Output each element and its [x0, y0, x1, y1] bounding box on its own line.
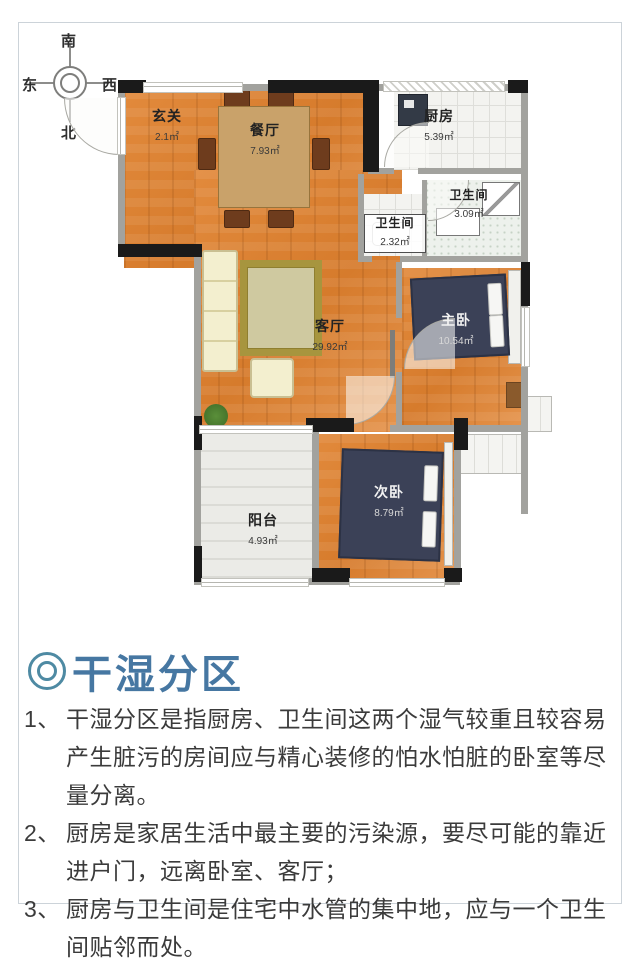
room-area: 2.1㎡ — [155, 132, 179, 143]
compass-label-east: 东 — [22, 74, 37, 95]
dining-chair — [312, 138, 330, 170]
double-circle-icon — [28, 652, 66, 690]
room-name: 次卧 — [344, 484, 434, 502]
room-name: 阳台 — [218, 512, 308, 530]
room-label-master: 主卧 10.54㎡ — [416, 312, 496, 350]
room-area: 4.93㎡ — [248, 536, 277, 547]
list-item: 2、 厨房是家居生活中最主要的污染源，要尽可能的靠近进户门，远离卧室、客厅； — [24, 814, 618, 890]
room-name: 餐厅 — [230, 122, 300, 140]
dining-chair — [224, 210, 250, 228]
room-area: 2.32㎡ — [380, 237, 409, 248]
tv — [390, 330, 395, 378]
room-label-bath-large: 卫生间 3.09㎡ — [434, 188, 504, 223]
plant — [204, 404, 228, 428]
room-name: 主卧 — [416, 312, 496, 330]
item-text: 厨房是家居生活中最主要的污染源，要尽可能的靠近进户门，远离卧室、客厅； — [66, 814, 618, 890]
double-circle-inner — [37, 661, 57, 681]
wall-black — [306, 418, 354, 432]
item-number: 1、 — [24, 700, 66, 814]
wall-segment — [396, 372, 402, 430]
list-item: 1、 干湿分区是指厨房、卫生间这两个湿气较重且较容易产生脏污的房间应与精心装修的… — [24, 700, 618, 814]
room-label-living: 客厅 29.92㎡ — [290, 318, 370, 356]
side-platform — [460, 434, 522, 474]
wall-black — [444, 568, 462, 582]
room-name: 玄关 — [132, 108, 202, 126]
tips-list: 1、 干湿分区是指厨房、卫生间这两个湿气较重且较容易产生脏污的房间应与精心装修的… — [24, 700, 618, 966]
room-area: 5.39㎡ — [424, 132, 453, 143]
window — [522, 308, 529, 366]
entry-door-opening — [118, 98, 125, 154]
pillow — [487, 283, 503, 316]
master-wardrobe — [508, 270, 521, 364]
room-name: 卫生间 — [368, 216, 422, 231]
room-label-bath-small: 卫生间 2.32㎡ — [364, 214, 426, 253]
wall-segment — [396, 262, 402, 318]
window — [350, 579, 444, 586]
window — [202, 579, 308, 586]
wall-black — [521, 262, 530, 306]
compass-label-west: 西 — [102, 74, 117, 95]
room-area: 7.93㎡ — [250, 146, 279, 157]
section-title-text: 干湿分区 — [72, 642, 244, 700]
wall-black — [363, 80, 379, 172]
room-label-dining: 餐厅 7.93㎡ — [230, 122, 300, 160]
wall-segment — [400, 256, 528, 262]
room-label-balcony: 阳台 4.93㎡ — [218, 512, 308, 550]
wall-segment — [312, 432, 319, 582]
armchair — [250, 358, 294, 398]
list-item: 3、 厨房与卫生间是住宅中水管的集中地，应与一个卫生间贴邻而处。 — [24, 890, 618, 966]
wall-black — [268, 80, 366, 93]
item-text: 干湿分区是指厨房、卫生间这两个湿气较重且较容易产生脏污的房间应与精心装修的怕水怕… — [66, 700, 618, 814]
wall-black — [312, 568, 350, 582]
room-name: 卫生间 — [434, 188, 504, 203]
room-area: 29.92㎡ — [312, 342, 347, 353]
compass-inner-circle — [60, 73, 80, 93]
wall-black — [194, 546, 202, 582]
room-label-second: 次卧 8.79㎡ — [344, 484, 434, 522]
appliance-panel — [404, 100, 414, 108]
window — [144, 83, 242, 92]
room-area: 8.79㎡ — [374, 508, 403, 519]
wall-black — [194, 416, 202, 450]
floor-plan: 玄关 2.1㎡ 餐厅 7.93㎡ 厨房 5.39㎡ 卫生间 2.32㎡ 卫生间 … — [118, 80, 530, 592]
wall-black — [454, 418, 468, 450]
wall-segment — [454, 428, 461, 578]
balcony-floor — [198, 434, 312, 578]
wall-black — [118, 244, 202, 257]
room-label-entrance: 玄关 2.1㎡ — [132, 108, 202, 146]
section-title: 干湿分区 — [28, 642, 244, 700]
wall-black — [118, 80, 146, 93]
room-area: 3.09㎡ — [454, 209, 483, 220]
item-number: 2、 — [24, 814, 66, 890]
room-label-kitchen: 厨房 5.39㎡ — [404, 108, 474, 146]
room-area: 10.54㎡ — [438, 336, 473, 347]
kitchen-window — [384, 82, 504, 91]
item-number: 3、 — [24, 890, 66, 966]
room-name: 厨房 — [404, 108, 474, 126]
wall-black — [508, 80, 528, 93]
sofa — [202, 250, 238, 372]
second-wardrobe — [444, 442, 453, 566]
item-text: 厨房与卫生间是住宅中水管的集中地，应与一个卫生间贴邻而处。 — [66, 890, 618, 966]
room-name: 客厅 — [290, 318, 370, 336]
wall-segment — [418, 168, 528, 174]
ac-platform — [526, 396, 552, 432]
balcony-slider-window — [200, 426, 312, 433]
dining-chair — [268, 210, 294, 228]
wall-segment — [358, 256, 372, 262]
compass-label-south: 南 — [61, 30, 76, 51]
